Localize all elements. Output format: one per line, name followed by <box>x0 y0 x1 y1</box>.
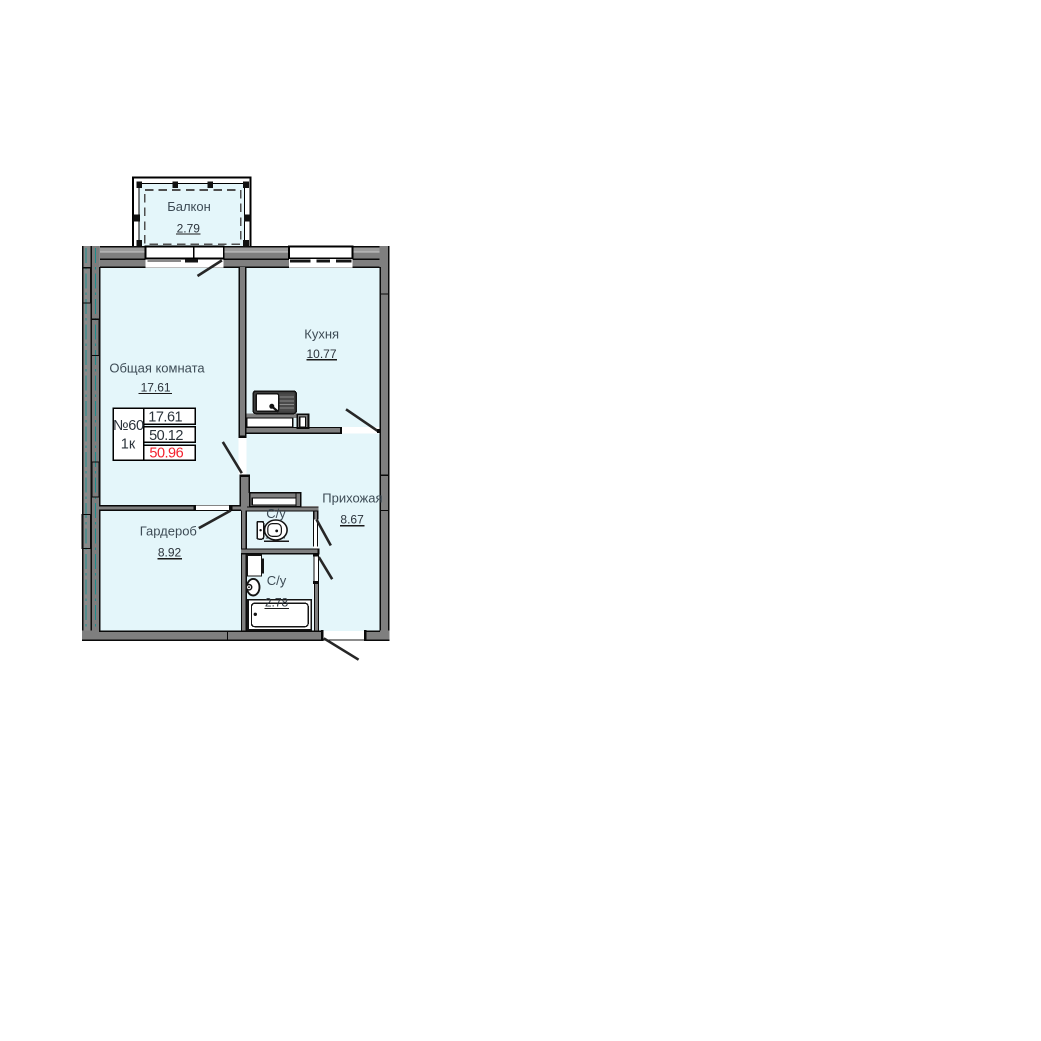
svg-text:Общая комната: Общая комната <box>109 361 205 376</box>
svg-text:17.61: 17.61 <box>148 410 182 426</box>
svg-text:50.12: 50.12 <box>149 428 183 444</box>
svg-text:2.78: 2.78 <box>265 595 289 609</box>
svg-text:8.67: 8.67 <box>340 513 364 527</box>
svg-text:Гардероб: Гардероб <box>140 523 197 538</box>
svg-text:Кухня: Кухня <box>304 326 339 341</box>
svg-text:1к: 1к <box>121 436 136 452</box>
svg-text:Прихожая: Прихожая <box>322 490 382 505</box>
svg-text:Балкон: Балкон <box>167 199 211 214</box>
svg-text:С/у: С/у <box>266 506 286 521</box>
svg-text:С/у: С/у <box>267 573 287 588</box>
svg-text:17.61: 17.61 <box>141 380 171 394</box>
svg-text:№60: №60 <box>113 418 144 434</box>
svg-text:10.77: 10.77 <box>306 347 336 361</box>
svg-text:2.79: 2.79 <box>177 221 201 235</box>
svg-text:50.96: 50.96 <box>149 446 183 462</box>
svg-text:8.92: 8.92 <box>158 546 182 560</box>
